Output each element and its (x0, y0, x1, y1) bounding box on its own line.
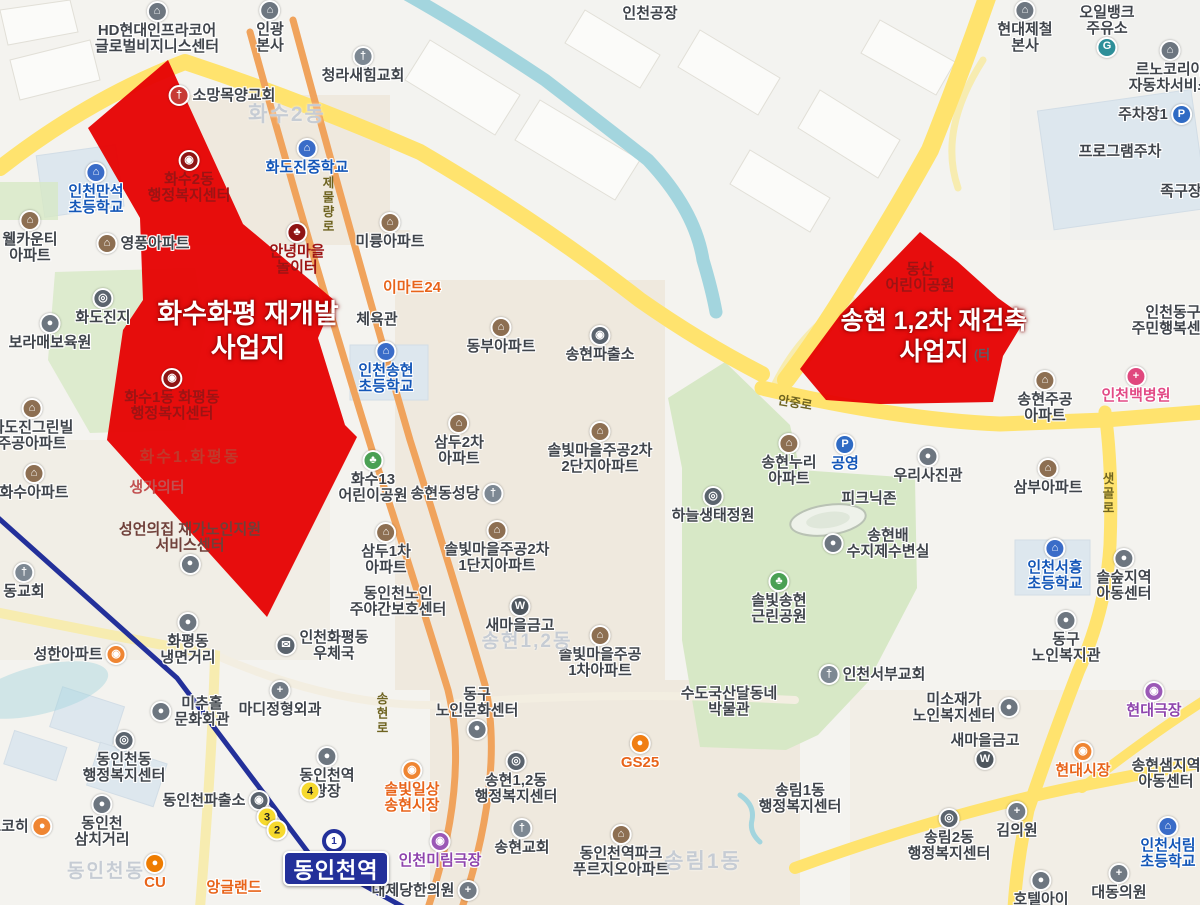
map-poi[interactable]: 새마을금고W (950, 733, 1019, 771)
map-poi[interactable]: ⌂인천서흥초등학교 (1027, 538, 1082, 592)
map-poi-label: 프로그램주차 (1079, 144, 1162, 160)
pk-icon: P (834, 434, 855, 455)
map-poi[interactable]: ⌂미륭아파트 (355, 212, 424, 250)
map-poi-label: 동인천노인주야간보호센터 (350, 586, 447, 618)
map-poi[interactable]: 이마트24 (383, 280, 441, 296)
map-poi[interactable]: ⌂화수아파트 (0, 463, 69, 501)
pol-icon: ◉ (589, 325, 610, 346)
map-poi[interactable]: +대동의원 (1091, 863, 1146, 901)
map-poi[interactable]: 오일뱅크주유소G (1079, 5, 1134, 59)
map-poi[interactable]: ◉인천미림극장 (399, 831, 482, 869)
map-poi[interactable]: ⌂동인천역파크푸르지오아파트 (573, 824, 670, 878)
zone-title-songhyeon-12[interactable]: 송현 1,2차 재건축사업지 (841, 306, 1028, 369)
map-poi-label: 솔빛마을주공2차1단지아파트 (445, 542, 550, 574)
map-poi-label: 인천송현초등학교 (358, 363, 413, 395)
sch-icon: ⌂ (1044, 538, 1065, 559)
par-icon: ♣ (768, 571, 789, 592)
map-poi[interactable]: 동인천노인주야간보호센터 (350, 586, 447, 618)
station-badge[interactable]: 동인천역 (283, 851, 389, 886)
map-poi-label: CU (144, 875, 166, 891)
apt-icon: ⌂ (23, 463, 44, 484)
map-poi[interactable]: 송현샘지역아동센터 (1131, 758, 1200, 790)
map-poi[interactable]: ⌂삼두1차아파트 (361, 522, 411, 576)
map-poi-label: 우리사진관 (893, 468, 962, 484)
map-poi[interactable]: ⌂현대제철본사 (997, 0, 1052, 54)
map-poi-label: 동인천동행정복지센터 (83, 752, 166, 784)
map-poi-label: 동인천파출소 (163, 793, 246, 809)
map-poi[interactable]: ◉화수2동행정복지센터 (148, 150, 231, 204)
district-label: 화수2동 (248, 98, 326, 128)
map-poi-label: 동산어린이공원 (885, 262, 954, 294)
map-poi[interactable]: †인천서부교회 (819, 664, 926, 686)
map-poi[interactable]: 수도국산달동네박물관 (681, 686, 778, 718)
map-poi[interactable]: ⌂화도진중학교 (266, 138, 349, 176)
apt-icon: ⌂ (449, 413, 470, 434)
map-poi-label: 화도진중학교 (266, 160, 349, 176)
map-poi[interactable]: †청라새힘교회 (322, 46, 405, 84)
subway-exit-badge[interactable]: 2 (267, 820, 288, 841)
map-poi-label: 현대시장 (1055, 763, 1110, 779)
map-poi-label: 안녕마을놀이터 (269, 244, 324, 276)
cu-icon: ● (144, 853, 165, 874)
apt-icon: ⌂ (96, 233, 117, 254)
map-poi[interactable]: 동구노인문화센터● (436, 687, 519, 741)
district-label: 화수1.화평동 (140, 443, 241, 467)
map-poi[interactable]: ♣화수13어린이공원 (338, 450, 407, 504)
map-poi-label: 송림2동행정복지센터 (908, 830, 991, 862)
map-poi[interactable]: ●동구노인복지관 (1031, 610, 1100, 664)
map-poi[interactable]: ⌂솔빛마을주공2차2단지아파트 (548, 421, 653, 475)
map-poi-label: 성한아파트 (33, 647, 102, 663)
map-label-layer: ⌂HD현대인프라코어글로벌비지니스센터⌂인광본사†청라새힘교회인천공장⌂현대제철… (0, 0, 1200, 905)
map-poi[interactable]: ⌂인광본사 (256, 0, 284, 54)
map-poi-label: 화도진그린빌주공아파트 (0, 420, 73, 452)
map-poi[interactable]: ●화평동냉면거리 (160, 612, 215, 666)
map-poi-label: 현대극장 (1126, 703, 1181, 719)
map-poi[interactable]: 피크닉존 (841, 491, 896, 507)
map-poi-label: 송현샘지역아동센터 (1131, 758, 1200, 790)
map-poi-label: 인천공장 (622, 6, 677, 22)
map-poi-label: 영풍아파트 (120, 236, 189, 252)
map-poi-label: 동구노인문화센터 (436, 687, 519, 719)
sch-icon: ⌂ (297, 138, 318, 159)
map-poi[interactable]: ◉솔빛일상송현시장 (384, 760, 439, 814)
apt-icon: ⌂ (22, 398, 43, 419)
map-poi-label: 웰카운티아파트 (2, 232, 57, 264)
dot-icon: ● (40, 313, 61, 334)
map-poi[interactable]: ●호텔아이 (1013, 870, 1068, 905)
map-poi-label: 피크닉존 (841, 491, 896, 507)
map-poi-label: 주차장1 (1118, 107, 1168, 123)
map-poi[interactable]: 족구장 (1160, 184, 1200, 200)
apt-icon: ⌂ (1034, 370, 1055, 391)
apt-icon: ⌂ (376, 522, 397, 543)
map-poi-label: 현대제철본사 (997, 22, 1052, 54)
map-poi-label: 화평동냉면거리 (160, 634, 215, 666)
map-poi-label: 삼두1차아파트 (361, 544, 411, 576)
gov-icon: ◎ (703, 486, 724, 507)
map-poi[interactable]: ⌂송현누리아파트 (761, 433, 816, 487)
map-poi[interactable]: ⌂삼부아파트 (1013, 458, 1082, 496)
map-poi-label: 화수2동행정복지센터 (148, 172, 231, 204)
thr-icon: ◉ (430, 831, 451, 852)
gas-icon: G (1096, 37, 1117, 58)
apt-icon: ⌂ (590, 625, 611, 646)
dot-icon: ● (179, 554, 200, 575)
dot-icon: ● (467, 719, 488, 740)
map-poi[interactable]: ⌂르노코리아자동차서비스 (1129, 40, 1200, 94)
map-poi-label: 인천만석초등학교 (68, 184, 123, 216)
map-poi-label: 호텔아이 (1013, 892, 1068, 905)
biz-icon: ⌂ (1160, 40, 1181, 61)
post-icon: ✉ (275, 635, 296, 656)
map-poi-label: 인천서부교회 (843, 667, 926, 683)
map-poi-label: 동인천역파크푸르지오아파트 (573, 846, 670, 878)
chu-icon: † (511, 818, 532, 839)
map-poi-label: 보라매보육원 (9, 335, 92, 351)
map-poi-label: 미륭아파트 (355, 234, 424, 250)
map-poi-label: 앙글랜드 (206, 880, 261, 896)
gov-icon: ◎ (506, 751, 527, 772)
apt-icon: ⌂ (486, 520, 507, 541)
map-poi-label: 김의원 (996, 823, 1037, 839)
map-poi-label: 인천서림초등학교 (1140, 838, 1195, 870)
dot-icon: ● (1113, 548, 1134, 569)
map-poi[interactable]: ♣솔빛송현근린공원 (751, 571, 806, 625)
map-poi-label: 미추홀문화회관 (174, 696, 229, 728)
district-label: 송현1,2동 (482, 626, 573, 653)
map-poi[interactable]: P공영 (831, 434, 859, 472)
map-poi-label: HD현대인프라코어글로벌비지니스센터 (95, 23, 219, 55)
dot-icon: ● (177, 612, 198, 633)
map-poi[interactable]: 인천동구주민행복센터 (1132, 305, 1200, 337)
map-poi[interactable]: †동교회 (3, 562, 44, 600)
map-poi-label: 동구노인복지관 (1031, 632, 1100, 664)
map-poi-label: 청라새힘교회 (322, 68, 405, 84)
map-poi-label: 송현배수지제수변실 (847, 528, 930, 560)
w-icon: W (974, 749, 995, 770)
chu-icon: † (14, 562, 35, 583)
map-poi-label: 송현파출소 (565, 347, 634, 363)
apt-icon: ⌂ (379, 212, 400, 233)
govr-icon: ◉ (162, 368, 183, 389)
map-poi[interactable]: +마디정형외과 (239, 680, 322, 718)
map-poi-label: 드코히 (0, 819, 29, 835)
map-poi-label: 동교회 (3, 584, 44, 600)
map-poi[interactable]: ●보라매보육원 (9, 313, 92, 351)
map-poi-label: 송현누리아파트 (761, 455, 816, 487)
map-poi-label: 인천백병원 (1101, 388, 1170, 404)
map-poi-label: 르노코리아자동차서비스 (1129, 62, 1200, 94)
map-poi-label: 송현동성당 (410, 486, 479, 502)
map-poi[interactable]: ◉화수1동 화평동행정복지센터 (124, 368, 219, 422)
dot-icon: ● (150, 701, 171, 722)
road-name-label: 안중로 (777, 389, 814, 414)
road-name-label: 제물량로 (318, 176, 337, 234)
sch-icon: ⌂ (85, 162, 106, 183)
map-poi[interactable]: 성한아파트◉ (33, 644, 126, 666)
map-poi[interactable]: ⌂동부아파트 (466, 317, 535, 355)
map-poi[interactable]: ●CU (144, 853, 166, 891)
map-poi[interactable]: ⌂HD현대인프라코어글로벌비지니스센터 (95, 1, 219, 55)
chur-icon: † (169, 85, 190, 106)
map-poi[interactable]: ●GS25 (621, 733, 659, 771)
map-poi-label: 삼부아파트 (1013, 480, 1082, 496)
map-poi[interactable]: 체육관 (356, 312, 397, 328)
map-poi[interactable]: 송림1동행정복지센터 (759, 783, 842, 815)
mkt-icon: ◉ (1072, 741, 1093, 762)
map-poi-label: 대동의원 (1091, 885, 1146, 901)
map-poi[interactable]: 프로그램주차 (1079, 144, 1162, 160)
dot-icon: ● (823, 533, 844, 554)
biz-icon: ⌂ (146, 1, 167, 22)
map-poi[interactable]: ⌂영풍아파트 (96, 233, 189, 255)
map-poi[interactable]: 미소재가노인복지센터● (913, 692, 1020, 724)
cofe-icon: ● (32, 816, 53, 837)
map-canvas[interactable]: ⌂HD현대인프라코어글로벌비지니스센터⌂인광본사†청라새힘교회인천공장⌂현대제철… (0, 0, 1200, 905)
map-poi-label: 인천미림극장 (399, 853, 482, 869)
apt-icon: ⌂ (589, 421, 610, 442)
apt-icon: ⌂ (19, 210, 40, 231)
map-poi-label: 인천서흥초등학교 (1027, 560, 1082, 592)
map-poi[interactable]: 생가의터 (129, 480, 184, 496)
map-poi-label: 솔빛송현근린공원 (751, 593, 806, 625)
chu-icon: † (353, 46, 374, 67)
parr-icon: ♣ (286, 222, 307, 243)
map-poi-label: 송림1동행정복지센터 (759, 783, 842, 815)
district-label: 동인천동 (67, 856, 145, 883)
map-poi-label: 솔빛일상송현시장 (384, 782, 439, 814)
map-poi[interactable]: ◉현대시장 (1055, 741, 1110, 779)
map-poi-label: 솔숲지역아동센터 (1096, 570, 1151, 602)
apt-icon: ⌂ (778, 433, 799, 454)
map-poi-label: 동인천삼치거리 (74, 816, 129, 848)
map-poi[interactable]: 동산어린이공원 (885, 262, 954, 294)
map-poi[interactable]: ◎하늘생태정원 (672, 486, 755, 524)
subway-station-icon: 1 (322, 829, 346, 853)
gov-icon: ◎ (114, 730, 135, 751)
map-poi[interactable]: 주차장1P (1118, 104, 1192, 126)
map-poi[interactable]: ⌂웰카운티아파트 (2, 210, 57, 264)
map-poi-label: 생가의터 (129, 480, 184, 496)
gov-icon: ◎ (92, 288, 113, 309)
map-poi[interactable]: ⌂인천송현초등학교 (358, 341, 413, 395)
govr-icon: ◉ (179, 150, 200, 171)
pk-icon: P (1171, 104, 1192, 125)
map-poi[interactable]: ⌂인천만석초등학교 (68, 162, 123, 216)
map-poi-label: 화수아파트 (0, 485, 69, 501)
map-poi[interactable]: ●동인천삼치거리 (74, 794, 129, 848)
hos-icon: + (1007, 801, 1028, 822)
biz-icon: ⌂ (259, 0, 280, 21)
map-poi[interactable]: ◎송현1,2동행정복지센터 (475, 751, 558, 805)
zone-title-hwasu-hwapyeong[interactable]: 화수화평 재개발사업지 (157, 298, 338, 366)
map-poi-label: 새마을금고 (950, 733, 1019, 749)
map-poi[interactable]: †송현교회 (494, 818, 549, 856)
dot-icon: ● (998, 697, 1019, 718)
map-poi-label: 화수13어린이공원 (338, 472, 407, 504)
map-poi-label: 마디정형외과 (239, 702, 322, 718)
map-poi-label: 화수1동 화평동행정복지센터 (124, 390, 219, 422)
map-poi[interactable]: ⌂송현주공아파트 (1017, 370, 1072, 424)
map-poi[interactable]: ●미추홀문화회관 (150, 696, 229, 728)
map-poi-label: 오일뱅크주유소 (1079, 5, 1134, 37)
map-poi-label: 족구장 (1160, 184, 1200, 200)
par-icon: ♣ (362, 450, 383, 471)
mkt-icon: ◉ (106, 644, 127, 665)
apt-icon: ⌂ (1037, 458, 1058, 479)
map-poi-label: 송현1,2동행정복지센터 (475, 773, 558, 805)
map-poi-label: 인천화평동우체국 (299, 630, 368, 662)
thr-icon: ◉ (1143, 681, 1164, 702)
hos-icon: + (1108, 863, 1129, 884)
map-poi[interactable]: +김의원 (996, 801, 1037, 839)
hosp-icon: + (1125, 366, 1146, 387)
subway-exit-badge[interactable]: 4 (300, 781, 321, 802)
map-poi[interactable]: ◎동인천동행정복지센터 (83, 730, 166, 784)
map-poi[interactable]: +인천백병원 (1101, 366, 1170, 404)
dot-icon: ● (316, 746, 337, 767)
apt-icon: ⌂ (610, 824, 631, 845)
gov-icon: ◎ (939, 808, 960, 829)
dot-icon: ● (1055, 610, 1076, 631)
map-poi[interactable]: 앙글랜드 (206, 880, 261, 896)
map-poi-label: 공영 (831, 456, 859, 472)
map-poi-label: 체육관 (356, 312, 397, 328)
map-poi[interactable]: ◉현대극장 (1126, 681, 1181, 719)
sch-icon: ⌂ (375, 341, 396, 362)
map-poi-label: GS25 (621, 755, 659, 771)
map-poi[interactable]: ●송현배수지제수변실 (823, 528, 930, 560)
hos-icon: + (270, 680, 291, 701)
map-poi[interactable]: ●우리사진관 (893, 446, 962, 484)
road-name-label: 샛골로 (1098, 472, 1117, 516)
dot-icon: ● (1030, 870, 1051, 891)
map-poi[interactable]: ⌂인천서림초등학교 (1140, 816, 1195, 870)
w-icon: W (509, 596, 530, 617)
map-poi[interactable]: ⌂화도진그린빌주공아파트 (0, 398, 73, 452)
biz-icon: ⌂ (1014, 0, 1035, 21)
chu-icon: † (819, 664, 840, 685)
map-poi[interactable]: ◉송현파출소 (565, 325, 634, 363)
gs-icon: ● (629, 733, 650, 754)
road-name-label: 송현로 (372, 692, 391, 736)
map-poi-label: 성언의집 재가노인지원서비스센터 (119, 522, 261, 554)
dot-icon: ● (91, 794, 112, 815)
map-poi[interactable]: ⌂삼두2차아파트 (434, 413, 484, 467)
map-poi[interactable]: 인천공장 (622, 6, 677, 22)
hos-icon: + (457, 880, 478, 901)
map-poi-label: 솔빛마을주공2차2단지아파트 (548, 443, 653, 475)
map-poi-label: 수도국산달동네박물관 (681, 686, 778, 718)
map-poi-label: 삼두2차아파트 (434, 435, 484, 467)
chu-icon: † (483, 483, 504, 504)
mkt-icon: ◉ (401, 760, 422, 781)
map-poi-label: 인천동구주민행복센터 (1132, 305, 1200, 337)
map-poi[interactable]: ⌂솔빛마을주공2차1단지아파트 (445, 520, 550, 574)
map-poi[interactable]: 동인천파출소◉ (163, 790, 270, 812)
map-poi-label: 인광본사 (256, 22, 284, 54)
map-poi[interactable]: ♣안녕마을놀이터 (269, 222, 324, 276)
map-poi-label: 미소재가노인복지센터 (913, 692, 996, 724)
map-poi-label: 송현교회 (494, 840, 549, 856)
map-poi[interactable]: ●솔숲지역아동센터 (1096, 548, 1151, 602)
map-poi[interactable]: 송현동성당† (410, 483, 503, 505)
map-poi-label: 동부아파트 (466, 339, 535, 355)
map-poi[interactable]: ✉인천화평동우체국 (275, 630, 368, 662)
map-poi[interactable]: 성언의집 재가노인지원서비스센터● (119, 522, 261, 576)
map-poi-label: 하늘생태정원 (672, 508, 755, 524)
map-poi[interactable]: 드코히● (0, 816, 53, 838)
dot-icon: ● (917, 446, 938, 467)
map-poi-label: 이마트24 (383, 280, 441, 296)
sch-icon: ⌂ (1157, 816, 1178, 837)
apt-icon: ⌂ (490, 317, 511, 338)
map-poi-label: 송현주공아파트 (1017, 392, 1072, 424)
district-label: 송림1동 (664, 845, 742, 875)
map-poi[interactable]: ◎송림2동행정복지센터 (908, 808, 991, 862)
